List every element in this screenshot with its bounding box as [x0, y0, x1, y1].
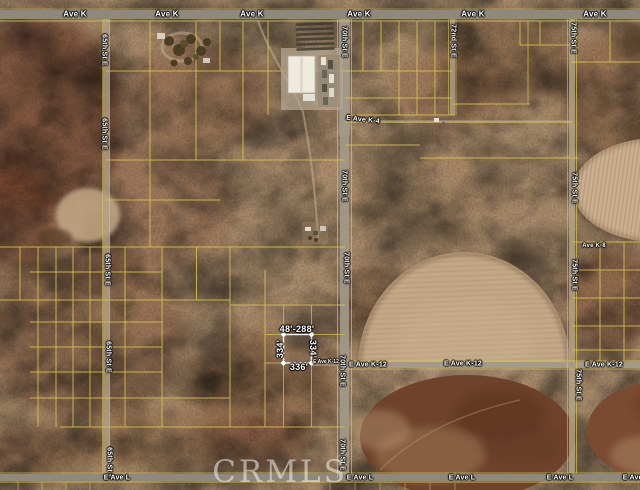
street-label-65th-st-e: 65th St E [101, 34, 108, 66]
dimension-label-top: 48'-288' [280, 324, 315, 334]
street-label-ave-k8: Ave K-8 [582, 243, 606, 249]
satellite-parcel-map: Ave K Ave K Ave K Ave K Ave K Ave K 65th… [0, 0, 640, 490]
street-label-e-ave-l: E Ave L [347, 475, 374, 482]
street-label-75th-st-e: 75th St E [571, 259, 578, 291]
street-label-65th-st-e: 65th St E [105, 341, 112, 373]
road-65th-st-e [103, 19, 109, 473]
street-label-75th-st-e: 75th St E [570, 22, 577, 54]
street-label-e-ave-l: E Ave L [547, 475, 574, 482]
street-label-e-ave-l: E Ave L [623, 475, 640, 482]
street-label-70th-st-e: 70th St E [341, 170, 348, 202]
street-label-ave-k: Ave K [240, 10, 263, 19]
dimension-label-right: 334' [308, 340, 318, 358]
street-label-e-ave-k12: E Ave K-12 [349, 362, 387, 369]
street-label-70th-st-e: 70th St E [341, 26, 348, 58]
street-label-ave-k: Ave K [63, 10, 86, 19]
street-label-ave-k: Ave K [347, 10, 370, 19]
dimension-label-left: 334' [275, 340, 285, 358]
street-label-70th-st-e: 70th St E [339, 355, 346, 387]
street-label-75th-st-e: 75th St E [575, 369, 582, 401]
street-label-e-ave-k12: E Ave K-12 [444, 361, 482, 368]
satellite-imagery [0, 0, 640, 490]
road-75th-st-e [569, 19, 575, 473]
street-label-70th-st-e: 70th St E [343, 252, 350, 284]
street-label-e-ave-k12: E Ave K-12 [585, 362, 623, 369]
street-label-ave-k: Ave K [155, 10, 178, 19]
street-label-65th-st-e: 65th St E [104, 254, 111, 286]
street-label-72nd-st-e: 72nd St E [450, 24, 457, 58]
street-label-e-ave-l: E Ave L [449, 475, 476, 482]
dimension-label-bottom: 336' [290, 362, 308, 372]
street-label-ave-k: Ave K [583, 10, 606, 19]
street-label-ave-k: Ave K [461, 10, 484, 19]
street-label-e-ave-l: E Ave L [104, 475, 131, 482]
farmstead [302, 222, 328, 244]
crmls-watermark: CRMLS [212, 454, 348, 490]
street-label-e-ave-k12: E Ave K-12 [313, 359, 339, 365]
small-structure [434, 118, 439, 122]
road-ave-k [0, 10, 640, 19]
street-label-65th-st-e: 65th St E [101, 118, 108, 150]
street-label-75th-st-e: 75th St E [571, 172, 578, 204]
